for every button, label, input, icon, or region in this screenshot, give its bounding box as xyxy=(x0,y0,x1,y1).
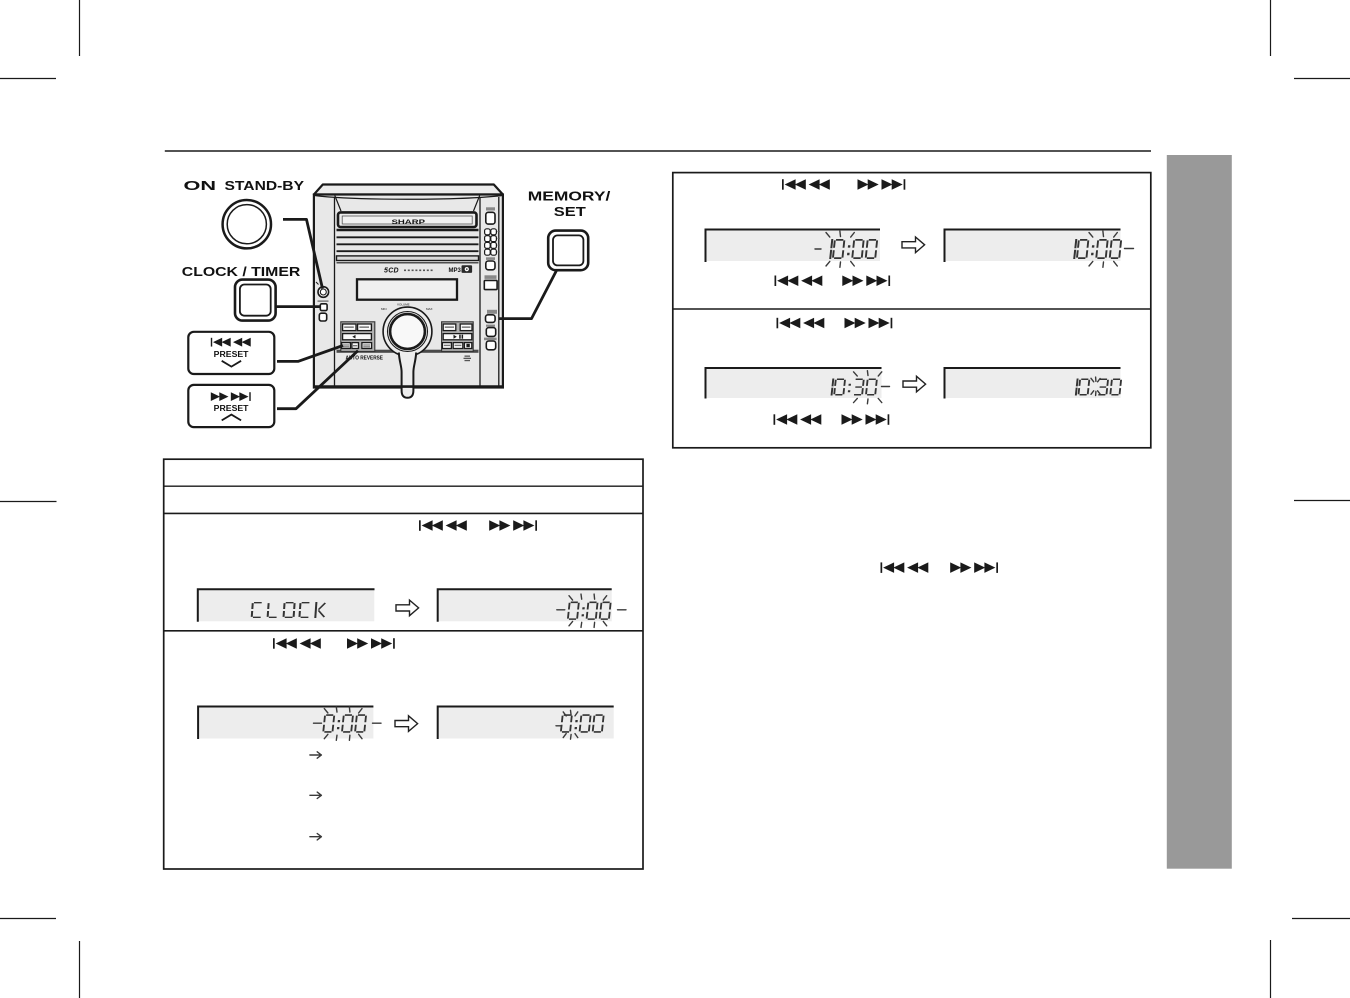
svg-text:PRESET: PRESET xyxy=(214,349,250,359)
svg-text:MAX: MAX xyxy=(426,307,433,311)
svg-text:PRESET: PRESET xyxy=(214,403,250,413)
svg-text:5CD: 5CD xyxy=(384,267,399,274)
svg-text:MEMORY/: MEMORY/ xyxy=(528,189,611,204)
svg-text:CLOCK / TIMER: CLOCK / TIMER xyxy=(182,264,301,279)
svg-text:STAND-BY: STAND-BY xyxy=(225,178,305,193)
svg-text:MP3: MP3 xyxy=(449,268,462,274)
svg-text:SET: SET xyxy=(554,204,586,219)
svg-text:SHARP: SHARP xyxy=(392,220,426,226)
svg-text:VOLUME: VOLUME xyxy=(397,303,410,307)
svg-text:MIN: MIN xyxy=(381,307,387,311)
svg-text:ON: ON xyxy=(184,178,217,193)
